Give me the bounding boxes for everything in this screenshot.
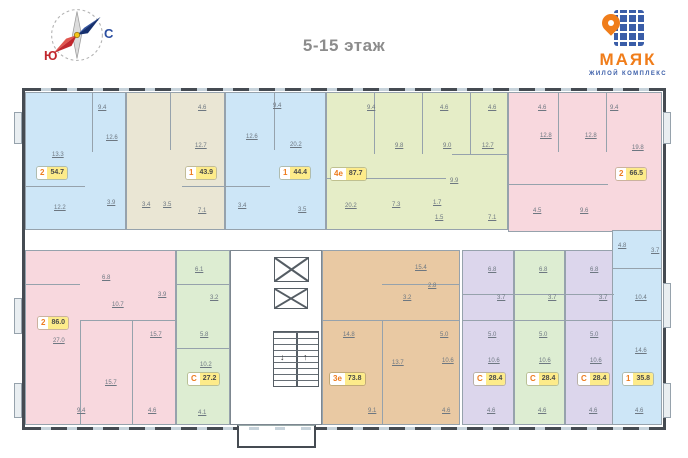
unit-badge[interactable]: 143.9: [186, 167, 216, 179]
balcony-tab: [663, 383, 671, 418]
dimension-label: 5.0: [488, 332, 496, 338]
dimension-label: 13.7: [392, 360, 404, 366]
staircase-icon: ↓ ↑: [273, 331, 319, 387]
dimension-label: 3.2: [210, 295, 218, 301]
dimension-label: 12.7: [195, 143, 207, 149]
balcony-tab: [14, 383, 22, 418]
logo: МАЯК ЖИЛОЙ КОМПЛЕКС: [586, 8, 670, 77]
dimension-label: 12.7: [482, 143, 494, 149]
wall-segment: [322, 320, 460, 321]
dimension-label: 2.8: [428, 283, 436, 289]
unit-badge[interactable]: 254.7: [37, 167, 67, 179]
dimension-label: 3.5: [298, 207, 306, 213]
unit-badge[interactable]: 286.0: [38, 317, 68, 329]
dimension-label: 27.0: [53, 338, 65, 344]
balcony-tab: [14, 112, 22, 144]
dimension-label: 10.4: [635, 295, 647, 301]
unit-area-label: 35.8: [633, 373, 653, 385]
wall-segment: [462, 294, 514, 295]
dimension-label: 3.9: [107, 200, 115, 206]
dimension-label: 9.4: [273, 103, 281, 109]
dimension-label: 9.6: [580, 208, 588, 214]
dimension-label: 3.7: [599, 295, 607, 301]
wall-segment: [452, 154, 508, 155]
unit-rooms-label: 2: [616, 168, 626, 180]
unit-rooms-label: С: [188, 373, 200, 385]
dimension-label: 9.4: [77, 408, 85, 414]
dimension-label: 12.6: [106, 135, 118, 141]
wall-segment: [514, 320, 565, 321]
wall-segment: [508, 184, 608, 185]
unit-area-label: 27.2: [200, 373, 220, 385]
logo-subtitle: ЖИЛОЙ КОМПЛЕКС: [586, 71, 670, 77]
unit-rooms-label: С: [527, 373, 539, 385]
dimension-label: 4.8: [618, 243, 626, 249]
dimension-label: 14.6: [635, 348, 647, 354]
unit-rooms-label: 2: [38, 317, 48, 329]
dimension-label: 3.9: [158, 292, 166, 298]
dimension-label: 3.4: [142, 202, 150, 208]
unit-rooms-label: 3е: [330, 373, 345, 385]
dimension-label: 9.1: [368, 408, 376, 414]
dimension-label: 6.8: [102, 275, 110, 281]
apartment-region[interactable]: [25, 92, 126, 230]
dimension-label: 4.6: [440, 105, 448, 111]
wall-segment: [132, 320, 133, 425]
dimension-label: 1.7: [433, 200, 441, 206]
dimension-label: 3.7: [651, 248, 659, 254]
apartment-region[interactable]: [225, 92, 326, 230]
dimension-label: 7.1: [198, 208, 206, 214]
dimension-label: 15.7: [150, 332, 162, 338]
dimension-label: 4.6: [538, 408, 546, 414]
dimension-label: 13.3: [52, 152, 64, 158]
dimension-label: 5.0: [539, 332, 547, 338]
unit-badge[interactable]: С27.2: [188, 373, 219, 385]
wall-segment: [470, 92, 471, 154]
unit-area-label: 43.9: [196, 167, 216, 179]
dimension-label: 12.2: [54, 205, 66, 211]
wall-segment: [182, 186, 225, 187]
dimension-label: 5.8: [200, 332, 208, 338]
wall-segment: [374, 92, 375, 154]
dimension-label: 10.6: [590, 358, 602, 364]
unit-rooms-label: 2: [37, 167, 47, 179]
apartment-region[interactable]: [326, 92, 508, 230]
dimension-label: 10.2: [200, 362, 212, 368]
dimension-label: 4.6: [635, 408, 643, 414]
apartment-region[interactable]: [612, 230, 662, 425]
unit-rooms-label: 4е: [331, 168, 346, 180]
wall-segment: [462, 320, 514, 321]
dimension-label: 4.5: [533, 208, 541, 214]
dimension-label: 6.8: [488, 267, 496, 273]
page-title: 5-15 этаж: [0, 36, 688, 56]
wall-segment: [382, 320, 383, 425]
wall-segment: [558, 92, 559, 152]
unit-rooms-label: 1: [623, 373, 633, 385]
wall-segment: [606, 92, 607, 152]
dimension-label: 5.0: [590, 332, 598, 338]
unit-badge[interactable]: 135.8: [623, 373, 653, 385]
wall-segment: [176, 284, 230, 285]
wall-segment: [170, 92, 171, 150]
unit-rooms-label: С: [474, 373, 486, 385]
unit-area-label: 28.4: [590, 373, 610, 385]
dimension-label: 12.8: [585, 133, 597, 139]
dimension-label: 3.7: [497, 295, 505, 301]
dimension-label: 9.0: [443, 143, 451, 149]
wall-segment: [80, 320, 176, 321]
unit-badge[interactable]: С28.4: [578, 373, 609, 385]
window-band-top: [25, 88, 663, 91]
window-band-bottom: [25, 427, 663, 430]
unit-area-label: 73.8: [345, 373, 365, 385]
wall-segment: [25, 284, 80, 285]
dimension-label: 4.6: [148, 408, 156, 414]
balcony-tab: [663, 283, 671, 328]
dimension-label: 5.0: [440, 332, 448, 338]
dimension-label: 3.4: [238, 203, 246, 209]
wall-segment: [274, 92, 275, 150]
dimension-label: 12.6: [246, 134, 258, 140]
unit-area-label: 28.4: [486, 373, 506, 385]
unit-rooms-label: 1: [186, 167, 196, 179]
dimension-label: 1.5: [435, 215, 443, 221]
unit-area-label: 54.7: [47, 167, 67, 179]
unit-badge[interactable]: С28.4: [527, 373, 558, 385]
dimension-label: 19.8: [632, 145, 644, 151]
stair-elevator-core: ↓ ↑: [230, 250, 322, 425]
dimension-label: 3.2: [403, 295, 411, 301]
unit-rooms-label: С: [578, 373, 590, 385]
wall-segment: [176, 348, 230, 349]
dimension-label: 7.1: [488, 215, 496, 221]
dimension-label: 3.7: [548, 295, 556, 301]
unit-badge[interactable]: 4е87.7: [331, 168, 366, 180]
dimension-label: 4.6: [442, 408, 450, 414]
unit-badge[interactable]: С28.4: [474, 373, 505, 385]
dimension-label: 4.1: [198, 410, 206, 416]
unit-area-label: 44.4: [290, 167, 310, 179]
dimension-label: 4.6: [538, 105, 546, 111]
unit-rooms-label: 1: [280, 167, 290, 179]
wall-segment: [612, 320, 662, 321]
dimension-label: 20.2: [290, 142, 302, 148]
elevator-shaft-icon: [274, 257, 309, 282]
dimension-label: 6.1: [195, 267, 203, 273]
dimension-label: 9.4: [610, 105, 618, 111]
dimension-label: 15.4: [415, 265, 427, 271]
unit-area-label: 87.7: [346, 168, 366, 180]
apartment-region[interactable]: [126, 92, 225, 230]
dimension-label: 3.5: [163, 202, 171, 208]
wall-segment: [25, 186, 85, 187]
dimension-label: 10.6: [442, 358, 454, 364]
dimension-label: 12.8: [540, 133, 552, 139]
wall-segment: [565, 320, 614, 321]
dimension-label: 9.4: [367, 105, 375, 111]
unit-area-label: 66.5: [626, 168, 646, 180]
dimension-label: 9.9: [450, 178, 458, 184]
wall-segment: [514, 294, 565, 295]
balcony-tab: [14, 298, 22, 334]
floor-plan: ↓ ↑ 254.79.412.613.312.23.9143.94.612.77…: [22, 88, 666, 430]
wall-segment: [382, 284, 460, 285]
dimension-label: 10.6: [539, 358, 551, 364]
dimension-label: 6.8: [539, 267, 547, 273]
wall-segment: [92, 92, 93, 152]
unit-area-label: 86.0: [48, 317, 68, 329]
dimension-label: 9.8: [395, 143, 403, 149]
dimension-label: 4.6: [487, 408, 495, 414]
wall-segment: [225, 186, 270, 187]
dimension-label: 15.7: [105, 380, 117, 386]
dimension-label: 10.6: [488, 358, 500, 364]
unit-badge[interactable]: 3е73.8: [330, 373, 365, 385]
dimension-label: 20.2: [345, 203, 357, 209]
floor-plan-page: { "header": { "title": "5-15 этаж", "com…: [0, 0, 688, 458]
wall-segment: [422, 92, 423, 154]
unit-badge[interactable]: 144.4: [280, 167, 310, 179]
stair-down-arrow-icon: ↓: [280, 352, 285, 362]
unit-badge[interactable]: 266.5: [616, 168, 646, 180]
dimension-label: 6.8: [590, 267, 598, 273]
logo-name: МАЯК: [586, 50, 670, 70]
dimension-label: 10.7: [112, 302, 124, 308]
dimension-label: 4.6: [589, 408, 597, 414]
dimension-label: 7.3: [392, 202, 400, 208]
dimension-label: 9.4: [98, 105, 106, 111]
unit-area-label: 28.4: [539, 373, 559, 385]
dimension-label: 4.6: [488, 105, 496, 111]
dimension-label: 14.8: [343, 332, 355, 338]
balcony-tab: [663, 112, 671, 144]
wall-segment: [612, 268, 662, 269]
elevator-shaft-icon: [274, 288, 308, 309]
stair-up-arrow-icon: ↑: [303, 352, 308, 362]
dimension-label: 4.6: [198, 105, 206, 111]
